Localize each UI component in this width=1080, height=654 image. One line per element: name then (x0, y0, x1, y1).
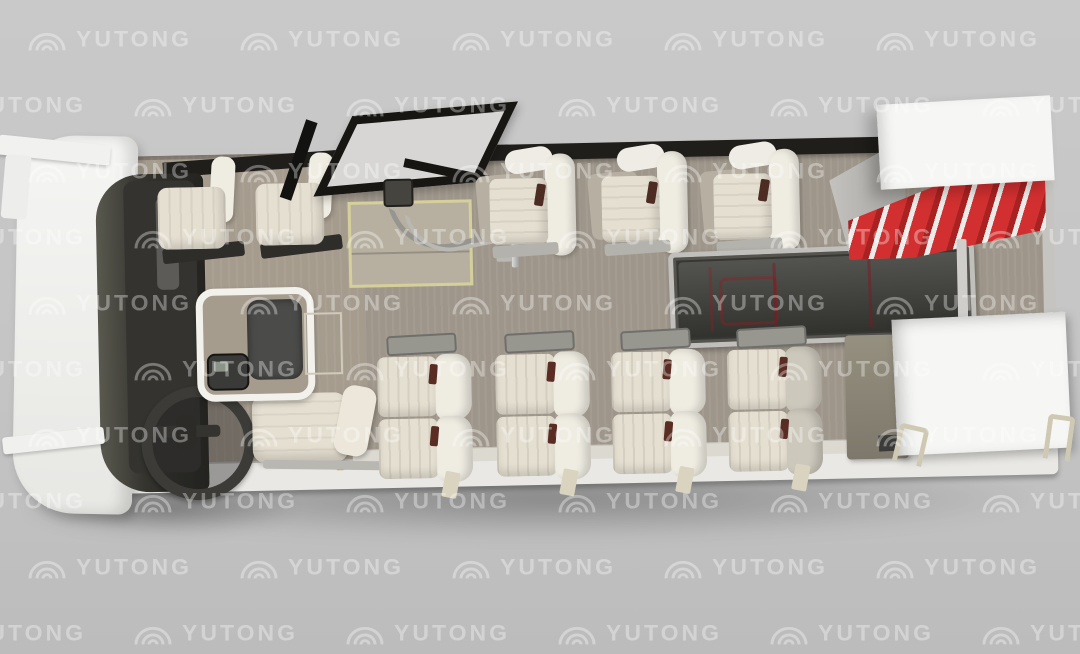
yutong-arcs-icon (768, 624, 810, 647)
yutong-arcs-icon (450, 30, 492, 53)
yutong-arcs-icon (344, 624, 386, 647)
seat-back-table (386, 332, 457, 356)
seat-shell (545, 153, 577, 256)
watermark-text: YUTONG (924, 555, 1040, 581)
yutong-arcs-icon (238, 30, 280, 53)
watermark-text: YUTONG (288, 27, 404, 53)
watermark-text: YUTONG (1030, 621, 1080, 647)
watermark: YUTONG (26, 555, 192, 581)
seat-shell (435, 353, 472, 420)
watermark: YUTONG (768, 621, 934, 647)
seat-back-table (504, 330, 575, 354)
left-mirror-head (1, 154, 32, 220)
lounge-chair (157, 187, 226, 250)
passenger-seat-pair (490, 331, 605, 485)
seat-floor-anchor (441, 471, 461, 499)
watermark: YUTONG (238, 555, 404, 581)
seat-back-table (620, 328, 691, 352)
sofa-section-divider (867, 259, 873, 327)
watermark: YUTONG (0, 93, 86, 119)
seat-back-table (736, 325, 807, 349)
watermark: YUTONG (26, 27, 192, 53)
watermark: YUTONG (132, 621, 298, 647)
watermark: YUTONG (344, 621, 510, 647)
yutong-arcs-icon (132, 96, 174, 119)
seatbelt (428, 364, 438, 385)
front-table (195, 287, 315, 402)
yutong-arcs-icon (132, 624, 174, 647)
seat-shell (769, 148, 801, 251)
watermark-text: YUTONG (394, 621, 510, 647)
bus-body (4, 107, 1070, 527)
yutong-arcs-icon (874, 30, 916, 53)
seat-shell (657, 151, 689, 254)
yutong-arcs-icon (450, 558, 492, 581)
yutong-arcs-icon (26, 558, 68, 581)
watermark: YUTONG (662, 27, 828, 53)
watermark: YUTONG (0, 621, 86, 647)
watermark: YUTONG (662, 555, 828, 581)
yutong-arcs-icon (662, 30, 704, 53)
watermark-text: YUTONG (182, 93, 298, 119)
watermark-text: YUTONG (500, 555, 616, 581)
table-top (247, 299, 304, 380)
watermark: YUTONG (874, 555, 1040, 581)
passenger-seat-pair (606, 328, 721, 482)
watermark-text: YUTONG (0, 621, 86, 647)
floor-hatch-outline (304, 312, 343, 375)
seatbelt (780, 419, 790, 440)
yutong-arcs-icon (980, 624, 1022, 647)
watermark-text: YUTONG (0, 93, 86, 119)
seatbelt (548, 423, 558, 444)
seatbelt (778, 357, 788, 378)
seatbelt (546, 361, 556, 382)
overhead-compartment (876, 95, 1054, 190)
seat-floor-anchor (559, 468, 579, 496)
watermark-text: YUTONG (818, 621, 934, 647)
sofa-armrest (682, 267, 713, 332)
passenger-seat-single (588, 145, 702, 265)
yutong-arcs-icon (556, 624, 598, 647)
driver-seat-base (263, 460, 383, 471)
watermark: YUTONG (980, 621, 1080, 647)
yutong-arcs-icon (238, 558, 280, 581)
watermark-text: YUTONG (76, 27, 192, 53)
seat-shell (553, 351, 590, 418)
watermark-text: YUTONG (288, 555, 404, 581)
watermark: YUTONG (874, 27, 1040, 53)
seat-shell (785, 346, 822, 413)
cabinet-bracket (1043, 413, 1076, 461)
bus-floorplan-render: YUTONGYUTONGYUTONGYUTONGYUTONGYUTONGYUTO… (0, 0, 1080, 654)
table-console (207, 353, 250, 391)
seatbelt (662, 359, 672, 380)
watermark: YUTONG (450, 555, 616, 581)
watermark: YUTONG (238, 27, 404, 53)
watermark: YUTONG (556, 621, 722, 647)
watermark: YUTONG (450, 27, 616, 53)
yutong-arcs-icon (662, 558, 704, 581)
watermark-text: YUTONG (182, 621, 298, 647)
seatbelt (664, 421, 674, 442)
watermark-text: YUTONG (76, 555, 192, 581)
passenger-seat-single (700, 142, 814, 262)
yutong-arcs-icon (26, 30, 68, 53)
seat-shell (669, 348, 706, 415)
sofa-seam (719, 275, 778, 326)
seat-floor-anchor (675, 466, 695, 494)
watermark-text: YUTONG (500, 27, 616, 53)
yutong-arcs-icon (874, 558, 916, 581)
watermark-text: YUTONG (924, 27, 1040, 53)
watermark-text: YUTONG (712, 555, 828, 581)
passenger-seat-pair (372, 333, 487, 487)
watermark: YUTONG (132, 93, 298, 119)
passenger-seat-single (476, 147, 590, 267)
seatbelt (430, 426, 440, 447)
watermark-text: YUTONG (606, 621, 722, 647)
watermark-text: YUTONG (712, 27, 828, 53)
yutong-arcs-icon (556, 96, 598, 119)
seat-floor-anchor (791, 463, 811, 491)
driver-seat (252, 392, 349, 464)
passenger-seat-pair (722, 326, 837, 480)
